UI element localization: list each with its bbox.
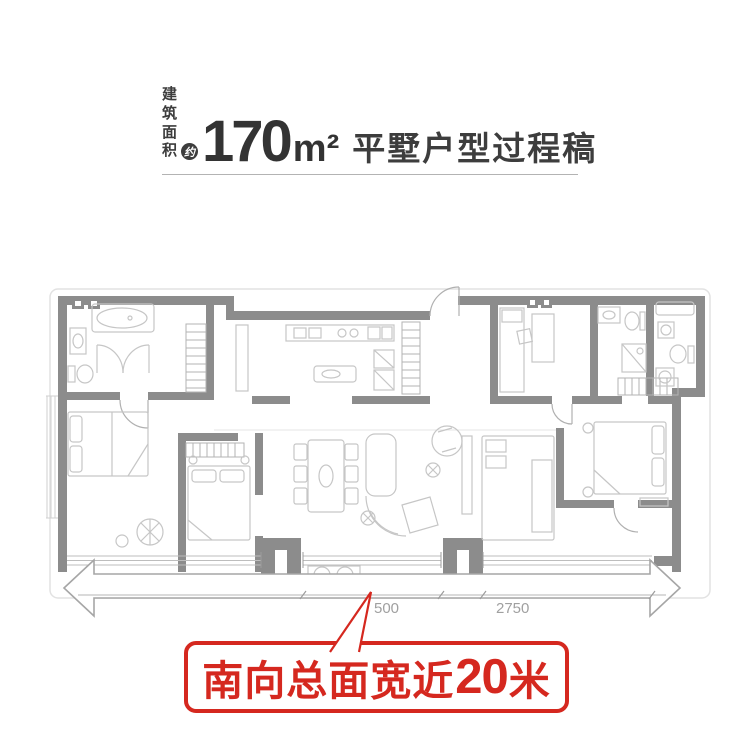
ottoman [402,497,438,533]
toilet [670,345,686,363]
bathroom-far-right [656,302,694,386]
callout-tail [322,586,378,658]
bed [188,466,250,540]
sofa [366,434,396,496]
bedroom-right [583,422,668,506]
kitchen-island [314,366,356,382]
callout-text-suffix: 米 [509,647,551,707]
bedroom-left [68,412,163,547]
bathroom-mid-right [598,307,646,372]
bed [68,412,148,476]
dining-area [294,440,375,525]
toilet-tank [68,366,75,382]
tv-console [462,436,472,514]
room-right-mid [482,436,554,540]
dining-table [308,440,344,512]
entry-door-arc [430,287,459,316]
bedroom-middle [188,456,250,540]
vanity [598,307,620,323]
kitchen [236,325,394,391]
toilet [625,312,639,330]
study [500,308,554,392]
furniture [68,302,694,585]
wardrobe-doors [97,345,149,373]
living-area [366,426,472,536]
dimension-label-2: 2750 [496,600,529,617]
callout-number: 20 [455,649,508,705]
bay-window-left [46,396,58,518]
toilet [77,365,93,383]
bathroom-left [68,304,154,383]
desk [532,314,554,362]
